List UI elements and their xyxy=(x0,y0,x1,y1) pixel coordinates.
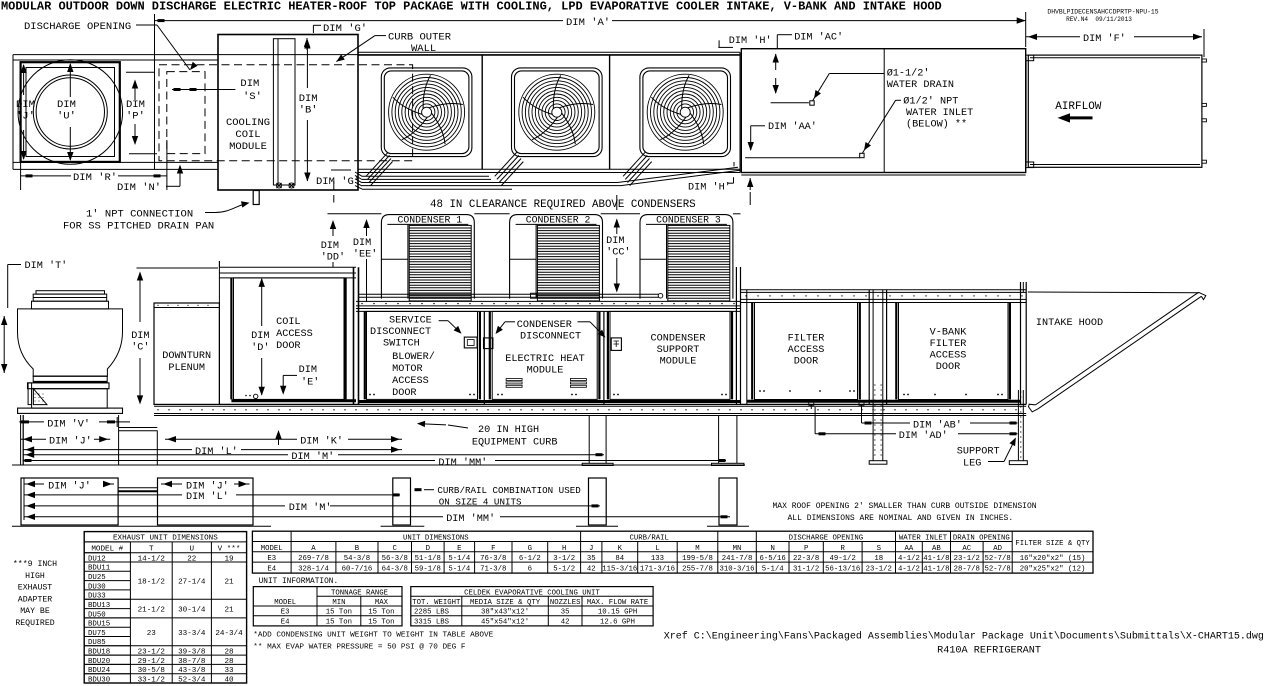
svg-text:DIM 'AB': DIM 'AB' xyxy=(913,419,962,431)
svg-text:DIM 'AA': DIM 'AA' xyxy=(768,121,817,133)
svg-text:UNIT DIMENSIONS: UNIT DIMENSIONS xyxy=(403,535,469,543)
svg-text:K: K xyxy=(618,545,623,553)
svg-text:'E': 'E' xyxy=(301,377,319,389)
svg-text:M: M xyxy=(695,545,699,553)
svg-text:CONDENSER 3: CONDENSER 3 xyxy=(656,214,721,225)
svg-text:DIM 'F': DIM 'F' xyxy=(1083,33,1126,45)
svg-text:23-1/2: 23-1/2 xyxy=(138,648,166,656)
svg-text:21: 21 xyxy=(224,607,234,615)
svg-text:41-1/8: 41-1/8 xyxy=(923,555,949,563)
svg-text:T: T xyxy=(149,546,154,554)
svg-text:52-3/4: 52-3/4 xyxy=(178,676,206,684)
svg-text:43-3/8: 43-3/8 xyxy=(178,667,206,675)
svg-text:35: 35 xyxy=(587,555,596,563)
svg-text:DOOR: DOOR xyxy=(794,357,818,368)
svg-text:DHVBLPIDECENSAHCCDPRTP-NPU-15: DHVBLPIDECENSAHCCDPRTP-NPU-15 xyxy=(1047,9,1158,16)
svg-text:40: 40 xyxy=(224,676,234,684)
svg-text:23: 23 xyxy=(147,630,157,638)
svg-text:DIM 'A': DIM 'A' xyxy=(566,17,610,29)
svg-text:'C': 'C' xyxy=(131,342,149,354)
svg-text:71-3/8: 71-3/8 xyxy=(480,566,506,574)
svg-text:WATER INLET: WATER INLET xyxy=(906,108,973,119)
svg-text:E3: E3 xyxy=(267,555,276,563)
svg-text:DIM 'L': DIM 'L' xyxy=(195,446,238,458)
svg-text:AA: AA xyxy=(905,545,914,553)
svg-text:BLOWER/: BLOWER/ xyxy=(392,351,435,363)
svg-text:MODULAR OUTDOOR DOWN DISCHARGE: MODULAR OUTDOOR DOWN DISCHARGE ELECTRIC … xyxy=(1,0,942,14)
svg-text:21: 21 xyxy=(224,579,234,587)
svg-text:10.15 GPH: 10.15 GPH xyxy=(598,609,637,617)
svg-text:2285 LBS: 2285 LBS xyxy=(414,609,450,617)
svg-text:Ø1-1/2': Ø1-1/2' xyxy=(887,68,930,80)
svg-text:20"x25"x2" (12): 20"x25"x2" (12) xyxy=(1020,566,1086,574)
svg-text:DIM 'K': DIM 'K' xyxy=(300,436,343,448)
svg-text:FILTER SIZE & QTY: FILTER SIZE & QTY xyxy=(1015,540,1090,548)
svg-text:L: L xyxy=(655,545,659,553)
svg-text:ACCESS: ACCESS xyxy=(788,345,825,356)
svg-text:MAX: MAX xyxy=(375,599,389,607)
svg-text:MAX ROOF OPENING 2' SMALLER TH: MAX ROOF OPENING 2' SMALLER THAN CURB OU… xyxy=(773,502,1037,511)
svg-text:MODEL: MODEL xyxy=(274,599,296,607)
svg-text:DIM: DIM xyxy=(353,238,371,249)
svg-text:1' NPT CONNECTION: 1' NPT CONNECTION xyxy=(86,209,193,221)
svg-text:MODULE: MODULE xyxy=(660,357,697,368)
svg-text:19: 19 xyxy=(224,555,234,563)
svg-text:'DD': 'DD' xyxy=(321,252,345,264)
svg-text:33-3/4: 33-3/4 xyxy=(178,630,206,638)
svg-text:TONNAGE RANGE: TONNAGE RANGE xyxy=(331,589,388,597)
svg-text:52-7/8: 52-7/8 xyxy=(985,555,1011,563)
svg-text:MODULE: MODULE xyxy=(527,366,564,377)
svg-text:33: 33 xyxy=(224,667,234,675)
svg-text:ON SIZE 4 UNITS: ON SIZE 4 UNITS xyxy=(439,496,522,507)
svg-text:E4: E4 xyxy=(281,619,290,627)
svg-text:28-7/8: 28-7/8 xyxy=(954,566,980,574)
svg-text:ELECTRIC HEAT: ELECTRIC HEAT xyxy=(505,354,584,365)
svg-text:DU50: DU50 xyxy=(88,611,106,619)
svg-text:WATER INLET: WATER INLET xyxy=(899,535,948,543)
svg-text:Ø1/2' NPT: Ø1/2' NPT xyxy=(903,96,958,108)
svg-text:4-1/2: 4-1/2 xyxy=(898,566,920,574)
svg-text:14-1/2: 14-1/2 xyxy=(138,555,166,563)
svg-text:AB: AB xyxy=(932,545,941,553)
svg-text:V-BANK: V-BANK xyxy=(930,328,968,339)
svg-text:DISCHARGE OPENING: DISCHARGE OPENING xyxy=(789,535,863,543)
svg-text:ACCESS: ACCESS xyxy=(930,351,967,362)
svg-text:DIM 'J': DIM 'J' xyxy=(48,480,91,492)
svg-text:DISCHARGE OPENING: DISCHARGE OPENING xyxy=(24,21,131,33)
svg-text:42: 42 xyxy=(587,566,596,574)
svg-text:COOLING: COOLING xyxy=(226,117,270,129)
svg-text:CONDENSER: CONDENSER xyxy=(650,334,705,345)
svg-text:49-1/2: 49-1/2 xyxy=(830,555,856,563)
svg-text:22-3/8: 22-3/8 xyxy=(793,555,819,563)
svg-text:DRAIN OPENING: DRAIN OPENING xyxy=(953,535,1010,543)
svg-text:5-1/4: 5-1/4 xyxy=(448,566,471,574)
svg-text:FOR SS PITCHED DRAIN PAN: FOR SS PITCHED DRAIN PAN xyxy=(63,221,214,233)
svg-text:MIN: MIN xyxy=(332,599,345,607)
svg-text:BDU18: BDU18 xyxy=(88,648,110,656)
svg-text:BDU20: BDU20 xyxy=(88,658,110,666)
svg-text:EXHAUST: EXHAUST xyxy=(18,584,52,593)
svg-text:TOT. WEIGHT: TOT. WEIGHT xyxy=(412,599,461,607)
svg-text:** MAX EVAP WATER PRESSURE = 5: ** MAX EVAP WATER PRESSURE = 50 PSI @ 70… xyxy=(253,644,466,652)
svg-text:DIM 'AC': DIM 'AC' xyxy=(794,32,843,44)
svg-text:DOOR: DOOR xyxy=(276,341,300,352)
svg-text:23-1/2: 23-1/2 xyxy=(954,555,980,563)
svg-text:H: H xyxy=(562,545,566,553)
svg-text:MAX. FLOW RATE: MAX. FLOW RATE xyxy=(587,599,648,607)
svg-text:29-1/2: 29-1/2 xyxy=(138,658,166,666)
svg-text:MODEL #: MODEL # xyxy=(91,546,123,554)
svg-text:DIM 'L': DIM 'L' xyxy=(186,491,229,503)
svg-text:'J': 'J' xyxy=(16,111,35,123)
svg-text:FILTER: FILTER xyxy=(788,334,825,345)
svg-text:56-13/16: 56-13/16 xyxy=(825,566,860,574)
svg-text:MOTOR: MOTOR xyxy=(392,364,423,375)
svg-text:CONDENSER 2: CONDENSER 2 xyxy=(526,214,591,225)
svg-text:SUPPORT: SUPPORT xyxy=(957,447,1000,458)
svg-text:52-7/8: 52-7/8 xyxy=(985,566,1011,574)
svg-text:REQUIRED: REQUIRED xyxy=(15,619,54,628)
svg-text:DU30: DU30 xyxy=(88,583,106,591)
svg-text:'CC': 'CC' xyxy=(606,247,630,259)
svg-text:SUPPORT: SUPPORT xyxy=(657,345,700,356)
svg-text:21-1/2: 21-1/2 xyxy=(138,607,166,615)
svg-text:28: 28 xyxy=(224,658,234,666)
svg-text:DISCONNECT: DISCONNECT xyxy=(520,332,581,343)
svg-text:UNIT INFORMATION.: UNIT INFORMATION. xyxy=(259,578,339,586)
svg-text:BDU24: BDU24 xyxy=(88,667,111,675)
svg-text:BDU13: BDU13 xyxy=(88,602,110,610)
svg-text:18: 18 xyxy=(874,555,883,563)
svg-text:MN: MN xyxy=(733,545,742,553)
svg-text:DIM 'N': DIM 'N' xyxy=(117,182,161,194)
svg-text:6-5/16: 6-5/16 xyxy=(760,555,786,563)
svg-text:E4: E4 xyxy=(267,566,276,574)
svg-text:BDU11: BDU11 xyxy=(88,565,111,573)
svg-text:MAY BE: MAY BE xyxy=(20,607,50,616)
svg-text:42: 42 xyxy=(561,619,570,627)
svg-text:Xref C:\Engineering\Fans\Packa: Xref C:\Engineering\Fans\Packaged Assemb… xyxy=(664,631,1264,643)
svg-text:3-1/2: 3-1/2 xyxy=(553,555,575,563)
svg-text:171-3/16: 171-3/16 xyxy=(640,566,675,574)
svg-text:4-1/2: 4-1/2 xyxy=(898,555,920,563)
svg-text:PLENUM: PLENUM xyxy=(168,363,205,374)
svg-text:DU33: DU33 xyxy=(88,593,106,601)
svg-text:F: F xyxy=(491,545,495,553)
svg-text:'B': 'B' xyxy=(299,105,318,117)
svg-text:FILTER: FILTER xyxy=(930,339,967,350)
svg-text:NOZZLES: NOZZLES xyxy=(550,599,581,607)
svg-text:84: 84 xyxy=(615,555,624,563)
svg-text:S: S xyxy=(877,545,882,553)
svg-text:ADAPTER: ADAPTER xyxy=(18,595,52,604)
svg-text:5-1/4: 5-1/4 xyxy=(762,566,785,574)
svg-text:COIL: COIL xyxy=(235,129,260,141)
svg-text:269-7/8: 269-7/8 xyxy=(298,555,329,563)
svg-text:DOWNTURN: DOWNTURN xyxy=(162,351,211,362)
svg-text:DOOR: DOOR xyxy=(392,388,416,399)
svg-text:U: U xyxy=(190,546,195,554)
svg-text:CURB/RAIL COMBINATION USED: CURB/RAIL COMBINATION USED xyxy=(437,485,581,496)
svg-text:18-1/2: 18-1/2 xyxy=(138,579,166,587)
svg-text:EXHAUST UNIT DIMENSIONS: EXHAUST UNIT DIMENSIONS xyxy=(113,534,218,542)
svg-text:DIM: DIM xyxy=(299,365,317,376)
svg-text:DIM 'MM': DIM 'MM' xyxy=(438,457,487,469)
svg-text:DIM 'R': DIM 'R' xyxy=(73,172,117,184)
svg-text:J: J xyxy=(589,545,593,553)
svg-text:15 Ton: 15 Ton xyxy=(326,619,352,627)
svg-text:56-3/8: 56-3/8 xyxy=(382,555,408,563)
svg-text:'EE': 'EE' xyxy=(353,249,377,261)
svg-text:AC: AC xyxy=(962,545,971,553)
svg-text:DIM 'M': DIM 'M' xyxy=(291,451,334,463)
svg-text:3315 LBS: 3315 LBS xyxy=(414,619,450,627)
svg-text:AIRFLOW: AIRFLOW xyxy=(1055,101,1102,113)
svg-text:A: A xyxy=(311,545,316,553)
svg-text:39-3/8: 39-3/8 xyxy=(178,648,206,656)
svg-text:EQUIPMENT CURB: EQUIPMENT CURB xyxy=(472,438,558,449)
svg-text:***9 INCH: ***9 INCH xyxy=(13,559,57,569)
svg-text:D: D xyxy=(426,545,431,553)
svg-text:DU12: DU12 xyxy=(88,555,106,563)
svg-text:310-3/16: 310-3/16 xyxy=(720,566,755,574)
svg-text:'D': 'D' xyxy=(251,342,269,354)
svg-text:DIM 'T': DIM 'T' xyxy=(25,260,68,272)
svg-text:ALL DIMENSIONS ARE NOMINAL AND: ALL DIMENSIONS ARE NOMINAL AND GIVEN IN … xyxy=(788,514,1014,523)
svg-text:35: 35 xyxy=(561,609,570,617)
svg-text:INTAKE HOOD: INTAKE HOOD xyxy=(1036,318,1103,329)
svg-text:*ADD CONDENSING UNIT WEIGHT TO: *ADD CONDENSING UNIT WEIGHT TO WEIGHT IN… xyxy=(253,632,493,640)
svg-text:38-7/8: 38-7/8 xyxy=(178,658,206,666)
svg-text:AD: AD xyxy=(993,545,1002,553)
svg-text:V ***: V *** xyxy=(218,546,241,554)
svg-text:LEG: LEG xyxy=(963,459,981,470)
svg-text:5-1/2: 5-1/2 xyxy=(553,566,575,574)
svg-text:CONDENSER: CONDENSER xyxy=(517,320,572,331)
svg-text:DIM 'V': DIM 'V' xyxy=(47,418,90,430)
svg-text:DIM 'J': DIM 'J' xyxy=(186,480,229,492)
svg-text:'S': 'S' xyxy=(243,91,262,103)
svg-text:255-7/8: 255-7/8 xyxy=(682,566,713,574)
svg-text:REV.N4 09/11/2013: REV.N4 09/11/2013 xyxy=(1066,16,1132,23)
svg-text:N: N xyxy=(770,545,774,553)
svg-text:SWITCH: SWITCH xyxy=(383,339,420,350)
svg-text:59-1/8: 59-1/8 xyxy=(415,566,441,574)
svg-text:DIM: DIM xyxy=(606,236,624,247)
svg-text:DISCONNECT: DISCONNECT xyxy=(370,327,431,338)
svg-text:27-1/4: 27-1/4 xyxy=(178,579,206,587)
svg-text:CURB OUTER: CURB OUTER xyxy=(388,32,452,44)
svg-text:ACCESS: ACCESS xyxy=(276,329,313,340)
svg-text:22: 22 xyxy=(187,555,197,563)
svg-text:DOOR: DOOR xyxy=(936,362,960,373)
svg-text:DIM: DIM xyxy=(131,331,149,342)
svg-text:48 IN CLEARANCE REQUIRED ABOVE: 48 IN CLEARANCE REQUIRED ABOVE CONDENSER… xyxy=(430,199,696,211)
svg-text:33-1/2: 33-1/2 xyxy=(138,676,166,684)
svg-text:SERVICE: SERVICE xyxy=(389,316,432,327)
svg-text:54-3/8: 54-3/8 xyxy=(344,555,370,563)
svg-text:6: 6 xyxy=(528,566,532,574)
svg-text:MEDIA SIZE & QTY: MEDIA SIZE & QTY xyxy=(470,599,541,607)
svg-text:R410A REFRIGERANT: R410A REFRIGERANT xyxy=(937,646,1041,657)
svg-text:CELDEK EVAPORATIVE COOLING UNI: CELDEK EVAPORATIVE COOLING UNIT xyxy=(464,589,600,597)
svg-text:DIM 'AD': DIM 'AD' xyxy=(899,430,948,442)
svg-text:E3: E3 xyxy=(281,609,290,617)
svg-text:DIM 'J': DIM 'J' xyxy=(49,436,92,448)
svg-text:DIM: DIM xyxy=(299,93,318,105)
svg-text:DIM 'G': DIM 'G' xyxy=(316,176,360,188)
svg-text:15 Ton: 15 Ton xyxy=(368,609,394,617)
svg-text:133: 133 xyxy=(651,555,664,563)
svg-text:DIM 'MM': DIM 'MM' xyxy=(446,513,495,525)
svg-text:5-1/4: 5-1/4 xyxy=(448,555,471,563)
svg-text:ACCESS: ACCESS xyxy=(392,376,429,387)
svg-text:DIM: DIM xyxy=(240,78,259,90)
svg-text:'P': 'P' xyxy=(126,111,145,123)
svg-text:WALL: WALL xyxy=(411,43,436,55)
svg-text:115-3/16: 115-3/16 xyxy=(602,566,637,574)
svg-text:BDU30: BDU30 xyxy=(88,676,110,684)
svg-text:R: R xyxy=(841,545,846,553)
svg-text:6-1/2: 6-1/2 xyxy=(519,555,541,563)
svg-text:328-1/4: 328-1/4 xyxy=(298,566,329,574)
svg-text:76-3/8: 76-3/8 xyxy=(480,555,506,563)
svg-text:DIM: DIM xyxy=(57,99,76,111)
svg-text:64-3/8: 64-3/8 xyxy=(382,566,408,574)
svg-text:20 IN HIGH: 20 IN HIGH xyxy=(478,425,539,436)
svg-text:WATER DRAIN: WATER DRAIN xyxy=(887,80,954,91)
svg-text:COIL: COIL xyxy=(276,317,300,328)
svg-text:15 Ton: 15 Ton xyxy=(368,619,394,627)
svg-text:16"x20"x2" (15): 16"x20"x2" (15) xyxy=(1020,555,1086,563)
svg-text:BDU15: BDU15 xyxy=(88,621,110,629)
svg-text:12.6 GPH: 12.6 GPH xyxy=(600,619,635,627)
svg-text:60-7/16: 60-7/16 xyxy=(342,566,373,574)
svg-text:38"x43"x12': 38"x43"x12' xyxy=(481,609,529,617)
svg-text:51-1/8: 51-1/8 xyxy=(415,555,441,563)
svg-text:23-1/2: 23-1/2 xyxy=(866,566,892,574)
svg-text:241-7/8: 241-7/8 xyxy=(722,555,753,563)
svg-text:G: G xyxy=(528,545,532,553)
svg-text:C: C xyxy=(393,545,398,553)
svg-text:45"x54"x12': 45"x54"x12' xyxy=(481,619,529,627)
svg-text:DIM 'M': DIM 'M' xyxy=(289,502,332,514)
svg-text:24-3/4: 24-3/4 xyxy=(215,630,243,638)
svg-text:'U': 'U' xyxy=(57,111,76,123)
svg-text:DIM: DIM xyxy=(251,331,269,342)
svg-text:DIM 'H': DIM 'H' xyxy=(688,182,731,194)
svg-text:E: E xyxy=(457,545,461,553)
svg-text:DIM 'G': DIM 'G' xyxy=(323,23,367,35)
svg-text:MODEL: MODEL xyxy=(261,545,283,553)
svg-text:P: P xyxy=(804,545,808,553)
svg-text:DU85: DU85 xyxy=(88,639,106,647)
svg-text:(BELOW) **: (BELOW) ** xyxy=(906,119,967,131)
svg-text:31-1/2: 31-1/2 xyxy=(793,566,819,574)
svg-text:199-5/8: 199-5/8 xyxy=(682,555,713,563)
svg-text:30-5/8: 30-5/8 xyxy=(138,667,166,675)
svg-text:MODULE: MODULE xyxy=(229,141,267,153)
svg-text:DIM: DIM xyxy=(16,99,35,111)
svg-text:CONDENSER 1: CONDENSER 1 xyxy=(398,214,463,225)
svg-text:15 Ton: 15 Ton xyxy=(326,609,352,617)
svg-text:41-1/8: 41-1/8 xyxy=(923,566,949,574)
svg-text:DIM 'H': DIM 'H' xyxy=(729,35,772,47)
svg-text:CURB/RAIL: CURB/RAIL xyxy=(629,535,668,543)
svg-text:HIGH: HIGH xyxy=(25,572,45,581)
svg-text:DIM: DIM xyxy=(321,241,339,252)
svg-text:B: B xyxy=(355,545,360,553)
svg-text:28: 28 xyxy=(224,648,234,656)
svg-text:30-1/4: 30-1/4 xyxy=(178,607,206,615)
svg-text:DU25: DU25 xyxy=(88,574,106,582)
svg-text:DIM: DIM xyxy=(126,99,145,111)
svg-text:DU75: DU75 xyxy=(88,630,106,638)
